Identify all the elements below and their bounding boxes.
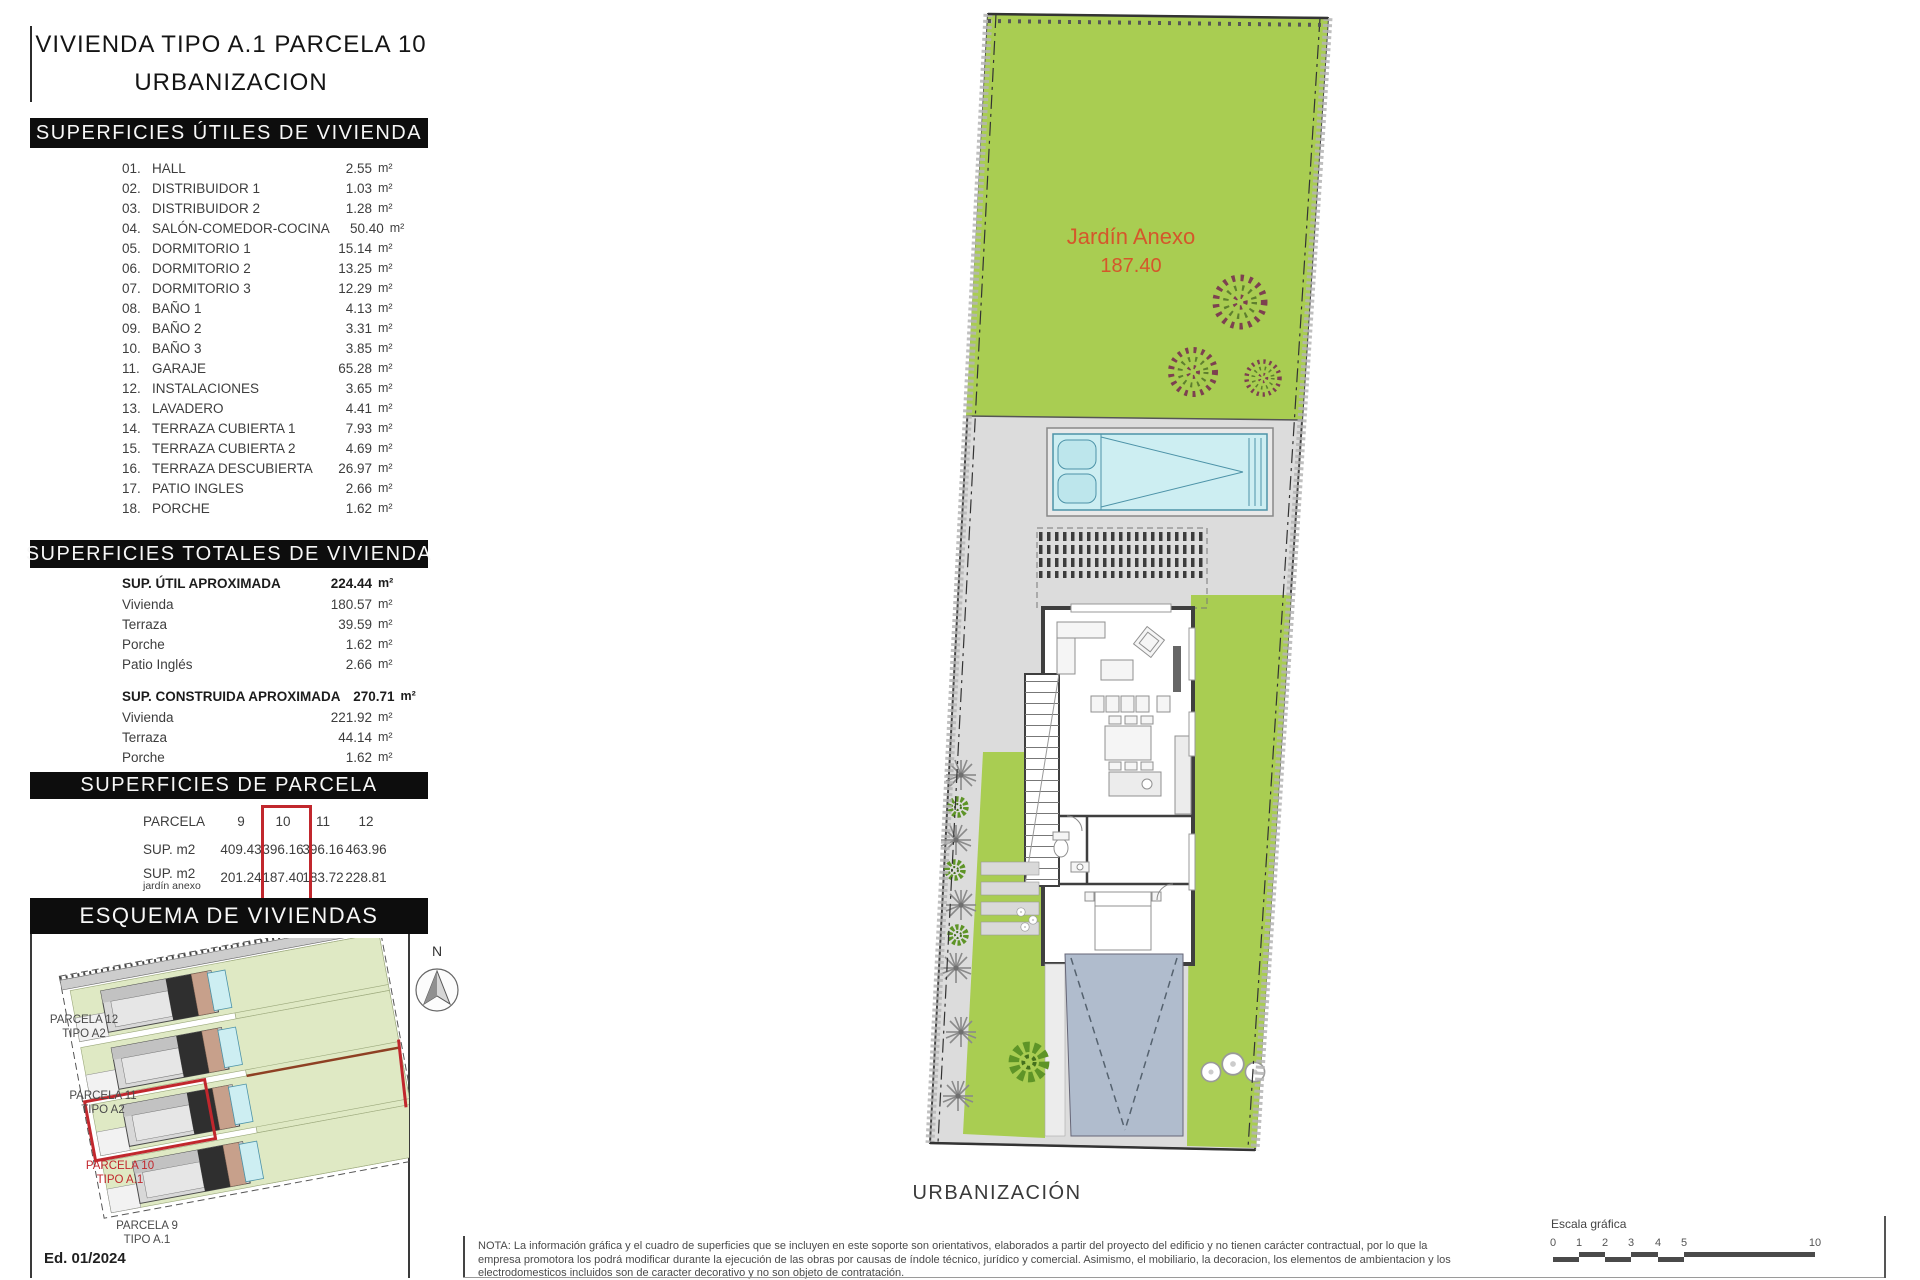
label-parcela-10-line2: TIPO A.1	[74, 1174, 166, 1188]
chair	[1121, 696, 1134, 712]
room-number: 18.	[122, 501, 152, 516]
parcel-sup-12: 463.96	[343, 842, 389, 857]
north-arrow-icon: N	[410, 942, 464, 1020]
palm-tree	[943, 1081, 973, 1111]
edition-date: Ed. 01/2024	[44, 1250, 126, 1267]
room-row: 14.TERRAZA CUBIERTA 17.93m²	[30, 418, 428, 438]
room-area: 7.93	[318, 421, 372, 436]
room-number: 11.	[122, 361, 152, 376]
total-item-unit: m²	[372, 617, 402, 631]
room-row: 07.DORMITORIO 312.29m²	[30, 278, 428, 298]
window	[1189, 628, 1195, 680]
label-parcela-12-line2: TIPO A2	[38, 1028, 130, 1042]
room-area-unit: m²	[372, 161, 402, 175]
total-item-unit: m²	[372, 657, 402, 671]
svg-text:10: 10	[1809, 1237, 1821, 1249]
label-parcela-12: PARCELA 12 TIPO A2	[38, 1014, 130, 1041]
chair	[1106, 696, 1119, 712]
nightstand	[1085, 892, 1094, 901]
total-item-unit: m²	[372, 597, 402, 611]
flower	[1021, 923, 1029, 931]
legal-note-line: electrodomesticos incluidos son de carac…	[478, 1267, 1451, 1280]
room-name: TERRAZA CUBIERTA 1	[152, 421, 318, 436]
room-name: DORMITORIO 2	[152, 261, 318, 276]
room-area-unit: m²	[372, 181, 402, 195]
parcel-sup-label: SUP. m2	[143, 842, 223, 857]
total-item-unit: m²	[372, 750, 402, 764]
total-item-row: Vivienda221.92m²	[30, 707, 428, 727]
total-item-value: 221.92	[318, 710, 372, 725]
room-row: 08.BAÑO 14.13m²	[30, 298, 428, 318]
header-esquema-text: ESQUEMA DE VIVIENDAS	[80, 903, 379, 929]
room-row: 17.PATIO INGLES2.66m²	[30, 478, 428, 498]
parcel-row-label: PARCELA	[143, 814, 223, 829]
total-item-label: Terraza	[122, 730, 318, 745]
room-area: 1.03	[318, 181, 372, 196]
room-area-unit: m²	[372, 261, 402, 275]
sheet-title-line1: VIVIENDA TIPO A.1 PARCELA 10	[32, 26, 430, 64]
parcel-garden-12: 228.81	[343, 870, 389, 885]
svg-text:0: 0	[1550, 1237, 1556, 1249]
footer-bottom-rule	[463, 1277, 1884, 1278]
room-area-unit: m²	[372, 241, 402, 255]
chair	[1157, 696, 1170, 712]
toilet	[1054, 839, 1068, 857]
total-item-row: Terraza44.14m²	[30, 727, 428, 747]
room-row: 06.DORMITORIO 213.25m²	[30, 258, 428, 278]
room-area: 1.28	[318, 201, 372, 216]
room-area-unit: m²	[372, 301, 402, 315]
room-number: 09.	[122, 321, 152, 336]
sheet-title-line2: URBANIZACION	[32, 64, 430, 102]
room-number: 06.	[122, 261, 152, 276]
room-name: BAÑO 2	[152, 321, 318, 336]
room-area-unit: m²	[372, 401, 402, 415]
graphic-scale: Escala gráfica 0 1 2 3 4 5 10	[1543, 1216, 1893, 1271]
room-area-unit: m²	[384, 221, 414, 235]
garden-annex-area: 187.40	[1100, 255, 1161, 277]
room-name: DISTRIBUIDOR 1	[152, 181, 318, 196]
totals-table: SUP. ÚTIL APROXIMADA224.44m²Vivienda180.…	[30, 572, 428, 787]
total-item-value: 180.57	[318, 597, 372, 612]
room-number: 04.	[122, 221, 152, 236]
flower	[1222, 1053, 1244, 1075]
house	[1025, 604, 1195, 964]
room-row: 15.TERRAZA CUBIERTA 24.69m²	[30, 438, 428, 458]
room-area: 13.25	[318, 261, 372, 276]
room-area: 15.14	[318, 241, 372, 256]
total-item-value: 39.59	[318, 617, 372, 632]
room-name: HALL	[152, 161, 318, 176]
total-item-value: 1.62	[318, 637, 372, 652]
total-item-row: Patio Inglés2.66m²	[30, 654, 428, 674]
parcel-col-12: 12	[343, 814, 389, 829]
total-item-label: Patio Inglés	[122, 657, 318, 672]
room-area: 3.85	[318, 341, 372, 356]
window	[1189, 834, 1195, 890]
room-area-unit: m²	[372, 201, 402, 215]
room-area-unit: m²	[372, 481, 402, 495]
room-number: 03.	[122, 201, 152, 216]
title-block: VIVIENDA TIPO A.1 PARCELA 10 URBANIZACIO…	[30, 26, 430, 102]
total-group-label: SUP. CONSTRUIDA APROXIMADA	[122, 689, 341, 704]
room-name: SALÓN-COMEDOR-COCINA	[152, 221, 330, 236]
room-area-unit: m²	[372, 461, 402, 475]
room-number: 17.	[122, 481, 152, 496]
room-area-unit: m²	[372, 361, 402, 375]
tv-unit	[1173, 646, 1181, 692]
total-item-label: Vivienda	[122, 597, 318, 612]
room-row: 12.INSTALACIONES3.65m²	[30, 378, 428, 398]
palm-tree	[946, 1017, 976, 1047]
parcel-garden-9: 201.24	[218, 870, 264, 885]
parcel-col-9: 9	[218, 814, 264, 829]
pool	[1047, 428, 1273, 516]
total-item-label: Porche	[122, 637, 318, 652]
highlight-box-parcela-10	[261, 805, 312, 904]
room-name: TERRAZA DESCUBIERTA	[152, 461, 318, 476]
room-area-unit: m²	[372, 441, 402, 455]
room-area-unit: m²	[372, 501, 402, 515]
legal-note: NOTA: La información gráfica y el cuadro…	[478, 1240, 1451, 1280]
room-number: 10.	[122, 341, 152, 356]
nightstand	[1152, 892, 1161, 901]
header-esquema: ESQUEMA DE VIVIENDAS	[30, 898, 428, 934]
room-name: TERRAZA CUBIERTA 2	[152, 441, 318, 456]
total-group-label: SUP. ÚTIL APROXIMADA	[122, 576, 318, 591]
total-item-unit: m²	[372, 710, 402, 724]
label-parcela-11-line1: PARCELA 11	[57, 1090, 149, 1104]
room-row: 18.PORCHE1.62m²	[30, 498, 428, 518]
total-item-label: Vivienda	[122, 710, 318, 725]
parcel-garden-sublabel: jardín anexo	[143, 880, 223, 892]
room-row: 10.BAÑO 33.85m²	[30, 338, 428, 358]
window	[1071, 604, 1171, 612]
total-group-header: SUP. CONSTRUIDA APROXIMADA270.71m²	[30, 685, 428, 707]
scale-label: Escala gráfica	[1551, 1217, 1627, 1231]
room-area: 2.55	[318, 161, 372, 176]
room-number: 12.	[122, 381, 152, 396]
garden-annex	[966, 14, 1328, 420]
total-item-unit: m²	[372, 637, 402, 651]
svg-text:4: 4	[1655, 1237, 1661, 1249]
room-name: BAÑO 1	[152, 301, 318, 316]
legal-note-line: empresa promotora los podrá modificar du…	[478, 1254, 1451, 1268]
room-area-unit: m²	[372, 321, 402, 335]
room-area: 4.13	[318, 301, 372, 316]
label-parcela-9: PARCELA 9 TIPO A.1	[101, 1220, 193, 1247]
chair	[1091, 696, 1104, 712]
room-area: 4.41	[318, 401, 372, 416]
room-number: 08.	[122, 301, 152, 316]
room-area: 2.66	[318, 481, 372, 496]
header-superficies-utiles: SUPERFICIES ÚTILES DE VIVIENDA	[30, 118, 428, 148]
room-number: 05.	[122, 241, 152, 256]
driveway	[1065, 954, 1183, 1136]
room-area: 4.69	[318, 441, 372, 456]
label-parcela-10-line1: PARCELA 10	[74, 1160, 166, 1174]
window	[1189, 712, 1195, 756]
coffee-table	[1101, 660, 1133, 680]
room-name: GARAJE	[152, 361, 318, 376]
room-name: DORMITORIO 3	[152, 281, 318, 296]
total-item-value: 44.14	[318, 730, 372, 745]
room-number: 01.	[122, 161, 152, 176]
room-area: 12.29	[318, 281, 372, 296]
svg-text:N: N	[432, 943, 442, 959]
label-parcela-10: PARCELA 10 TIPO A.1	[74, 1160, 166, 1187]
total-item-row: Terraza39.59m²	[30, 614, 428, 634]
room-number: 15.	[122, 441, 152, 456]
svg-text:5: 5	[1681, 1237, 1687, 1249]
room-row: 03.DISTRIBUIDOR 21.28m²	[30, 198, 428, 218]
room-row: 16.TERRAZA DESCUBIERTA26.97m²	[30, 458, 428, 478]
room-name: DISTRIBUIDOR 2	[152, 201, 318, 216]
plan-sheet: VIVIENDA TIPO A.1 PARCELA 10 URBANIZACIO…	[0, 0, 1920, 1280]
label-parcela-11: PARCELA 11 TIPO A2	[57, 1090, 149, 1117]
room-number: 16.	[122, 461, 152, 476]
room-row: 02.DISTRIBUIDOR 11.03m²	[30, 178, 428, 198]
footer-separator	[463, 1236, 465, 1278]
label-parcela-12-line1: PARCELA 12	[38, 1014, 130, 1028]
room-name: DORMITORIO 1	[152, 241, 318, 256]
total-item-unit: m²	[372, 730, 402, 744]
total-item-label: Terraza	[122, 617, 318, 632]
flower	[1017, 908, 1025, 916]
flower	[1029, 916, 1037, 924]
plan-caption: URBANIZACIÓN	[897, 1182, 1097, 1205]
label-parcela-11-line2: TIPO A2	[57, 1104, 149, 1118]
total-item-value: 1.62	[318, 750, 372, 765]
room-row: 01.HALL2.55m²	[30, 158, 428, 178]
room-name: INSTALACIONES	[152, 381, 318, 396]
room-number: 14.	[122, 421, 152, 436]
total-item-row: Porche1.62m²	[30, 747, 428, 767]
pergola	[1037, 528, 1207, 578]
total-group-value: 224.44	[318, 576, 372, 591]
room-row: 04.SALÓN-COMEDOR-COCINA50.40m²	[30, 218, 428, 238]
dining-table	[1105, 726, 1151, 760]
total-group-header: SUP. ÚTIL APROXIMADA224.44m²	[30, 572, 428, 594]
total-group-unit: m²	[395, 689, 425, 703]
svg-text:3: 3	[1628, 1237, 1634, 1249]
room-row: 13.LAVADERO4.41m²	[30, 398, 428, 418]
room-number: 13.	[122, 401, 152, 416]
room-area-unit: m²	[372, 421, 402, 435]
header-superficies-parcela: SUPERFICIES DE PARCELA	[30, 772, 428, 799]
room-area: 65.28	[318, 361, 372, 376]
room-area: 1.62	[318, 501, 372, 516]
parcel-garden-label: SUP. m2	[143, 866, 223, 881]
room-area: 50.40	[330, 221, 384, 236]
chair	[1136, 696, 1149, 712]
palm-tree	[941, 953, 971, 983]
label-parcela-9-line2: TIPO A.1	[101, 1234, 193, 1248]
header-superficies-utiles-text: SUPERFICIES ÚTILES DE VIVIENDA	[36, 122, 422, 145]
bed	[1095, 892, 1151, 950]
room-area: 26.97	[318, 461, 372, 476]
room-area: 3.31	[318, 321, 372, 336]
walkway	[1045, 964, 1065, 1136]
room-area-unit: m²	[372, 381, 402, 395]
kitchen-island	[1109, 772, 1161, 796]
total-item-label: Porche	[122, 750, 318, 765]
rooms-table: 01.HALL2.55m²02.DISTRIBUIDOR 11.03m²03.D…	[30, 158, 428, 518]
room-name: PATIO INGLES	[152, 481, 318, 496]
room-name: LAVADERO	[152, 401, 318, 416]
room-row: 05.DORMITORIO 115.14m²	[30, 238, 428, 258]
room-name: BAÑO 3	[152, 341, 318, 356]
label-parcela-9-line1: PARCELA 9	[101, 1220, 193, 1234]
header-superficies-totales-text: SUPERFICIES TOTALES DE VIVIENDA	[26, 543, 433, 566]
parcel-table: PARCELA 9 10 11 12 SUP. m2 409.43 396.16…	[30, 800, 428, 900]
sofa	[1057, 622, 1105, 638]
flower	[1201, 1062, 1220, 1081]
room-area: 3.65	[318, 381, 372, 396]
total-item-value: 2.66	[318, 657, 372, 672]
room-row: 09.BAÑO 23.31m²	[30, 318, 428, 338]
room-name: PORCHE	[152, 501, 318, 516]
staircase	[1025, 674, 1059, 886]
room-area-unit: m²	[372, 281, 402, 295]
total-group-unit: m²	[372, 576, 402, 590]
svg-text:2: 2	[1602, 1237, 1608, 1249]
total-item-row: Vivienda180.57m²	[30, 594, 428, 614]
room-number: 07.	[122, 281, 152, 296]
parcel-sup-9: 409.43	[218, 842, 264, 857]
room-row: 11.GARAJE65.28m²	[30, 358, 428, 378]
svg-text:1: 1	[1576, 1237, 1582, 1249]
room-number: 02.	[122, 181, 152, 196]
site-plan: Jardín Anexo 187.40	[925, 10, 1335, 1160]
room-area-unit: m²	[372, 341, 402, 355]
total-group-value: 270.71	[341, 689, 395, 704]
header-superficies-totales: SUPERFICIES TOTALES DE VIVIENDA	[30, 540, 428, 568]
header-superficies-parcela-text: SUPERFICIES DE PARCELA	[80, 774, 377, 797]
total-item-row: Porche1.62m²	[30, 634, 428, 654]
legal-note-line: NOTA: La información gráfica y el cuadro…	[478, 1240, 1451, 1254]
garden-annex-label: Jardín Anexo	[1067, 224, 1195, 249]
